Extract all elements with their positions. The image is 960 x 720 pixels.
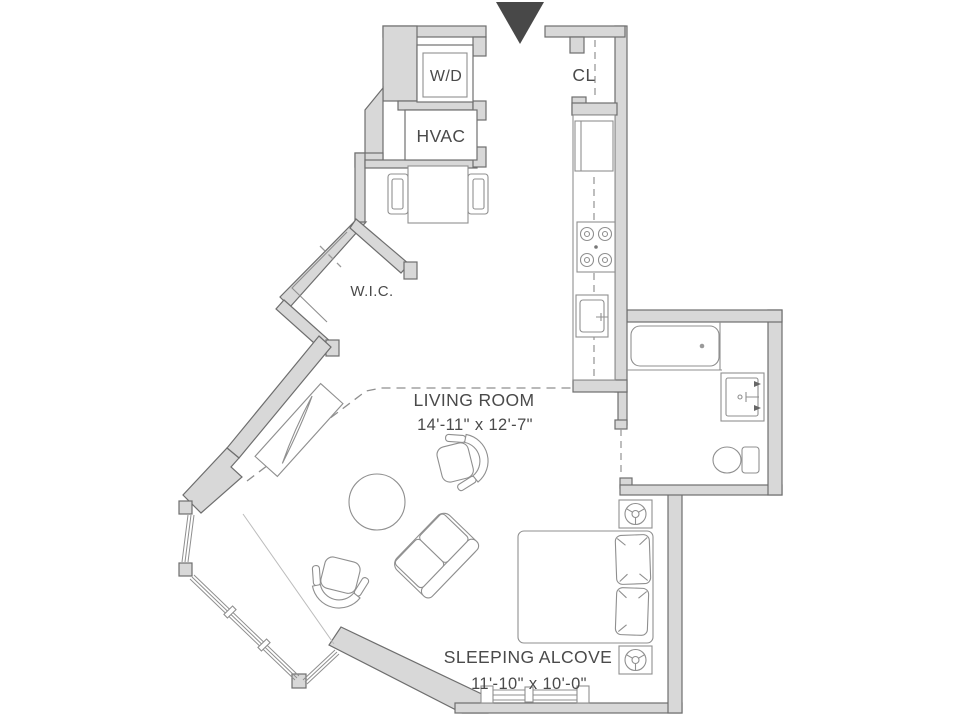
- sleeping-alcove-dimensions: 11'-10" x 10'-0": [471, 675, 587, 693]
- stove-burners: [577, 222, 615, 272]
- loveseat-sofa: [391, 510, 481, 601]
- pillow: [615, 587, 649, 635]
- tub-chair-1: [432, 426, 494, 495]
- bathroom: [627, 322, 764, 473]
- living-room-label: LIVING ROOM: [413, 390, 534, 410]
- bay-windows: [182, 515, 339, 684]
- round-table: [349, 474, 405, 530]
- bed: [518, 531, 653, 643]
- bathtub: [631, 326, 719, 366]
- sleeping-alcove-label: SLEEPING ALCOVE: [444, 647, 612, 667]
- toilet: [713, 447, 759, 473]
- nightstand-lamp-top: [619, 500, 652, 528]
- dining-table: [388, 166, 488, 223]
- pillow: [615, 534, 651, 584]
- entry-arrow-icon: [496, 2, 544, 44]
- floor-plan: W/D HVAC CL W.I.C. LIVING ROOM 14'-11" x…: [0, 0, 960, 720]
- closet-label: CL: [572, 65, 595, 85]
- living-room-dimensions: 14'-11" x 12'-7": [417, 416, 533, 434]
- vanity-sink: [721, 373, 764, 421]
- nightstand-lamp-bottom: [619, 646, 652, 674]
- washer-dryer-label: W/D: [430, 68, 462, 85]
- kitchen: [573, 115, 615, 380]
- kitchen-sink: [576, 295, 608, 337]
- wic-label: W.I.C.: [350, 283, 393, 300]
- refrigerator: [575, 121, 613, 171]
- tub-chair-2: [304, 552, 373, 614]
- hvac-label: HVAC: [417, 126, 466, 146]
- floor-plan-svg: W/D HVAC CL W.I.C. LIVING ROOM 14'-11" x…: [0, 0, 960, 720]
